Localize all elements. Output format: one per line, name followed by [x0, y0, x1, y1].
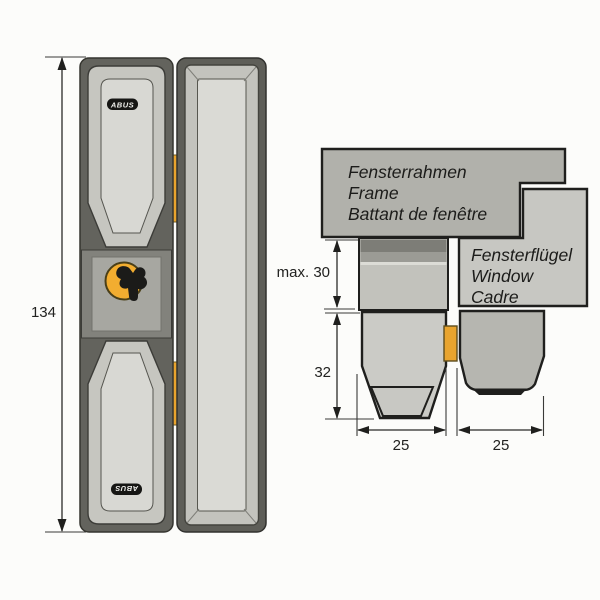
arrow-down-icon — [58, 519, 67, 532]
frame-depth-label: max. 30 — [277, 264, 330, 281]
section-view: Fensterrahmen Frame Battant de fenêtre F… — [277, 149, 587, 454]
arrow-right-icon — [531, 426, 543, 434]
frame-section-highlight-band — [361, 262, 447, 265]
frame-width-label: 25 — [393, 437, 410, 454]
diagram-svg: 134 ABUS ABUS — [0, 0, 600, 600]
arrow-left-icon — [458, 426, 470, 434]
sash-section-outline — [460, 311, 544, 390]
sash-label-line1: Fensterflügel — [471, 245, 573, 265]
frame-label-line2: Frame — [348, 183, 399, 203]
height-dimension: 134 — [31, 57, 86, 532]
abus-logo-text: ABUS — [110, 101, 134, 110]
abus-logo-top: ABUS — [107, 99, 138, 111]
bolt-cross-section — [444, 326, 457, 361]
sash-width-label: 25 — [493, 437, 510, 454]
frame-label-line3: Battant de fenêtre — [348, 204, 487, 224]
lock-cross-section — [362, 312, 446, 418]
lock-installation-diagram: 134 ABUS ABUS — [0, 0, 600, 600]
frame-section-dark-band — [361, 240, 447, 253]
arrow-down-icon — [333, 407, 341, 419]
lock-section-recess — [371, 387, 433, 416]
strike-bar-front — [177, 58, 266, 532]
arrow-up-icon — [333, 313, 341, 325]
frame-section-mid-band — [361, 252, 447, 262]
strike-bar-face — [198, 79, 247, 511]
lock-body-front: ABUS ABUS — [80, 58, 173, 532]
arrow-right-icon — [434, 426, 446, 434]
arrow-left-icon — [357, 426, 369, 434]
arrow-up-icon — [58, 57, 67, 70]
frame-cross-section — [359, 238, 448, 310]
frame-label-line1: Fensterrahmen — [348, 162, 467, 182]
front-view: 134 ABUS ABUS — [31, 57, 266, 532]
sash-label-line3: Cadre — [471, 287, 519, 307]
sash-cross-section — [460, 311, 544, 395]
frame-depth-dimension: max. 30 — [277, 240, 358, 309]
height-dim-label: 134 — [31, 304, 56, 321]
arrow-up-icon — [333, 240, 341, 252]
body-height-label: 32 — [314, 364, 331, 381]
sash-label-line2: Window — [471, 266, 534, 286]
abus-logo-text: ABUS — [115, 484, 139, 493]
sash-section-lip — [472, 389, 527, 396]
abus-logo-bottom: ABUS — [111, 484, 142, 496]
arrow-down-icon — [333, 296, 341, 308]
